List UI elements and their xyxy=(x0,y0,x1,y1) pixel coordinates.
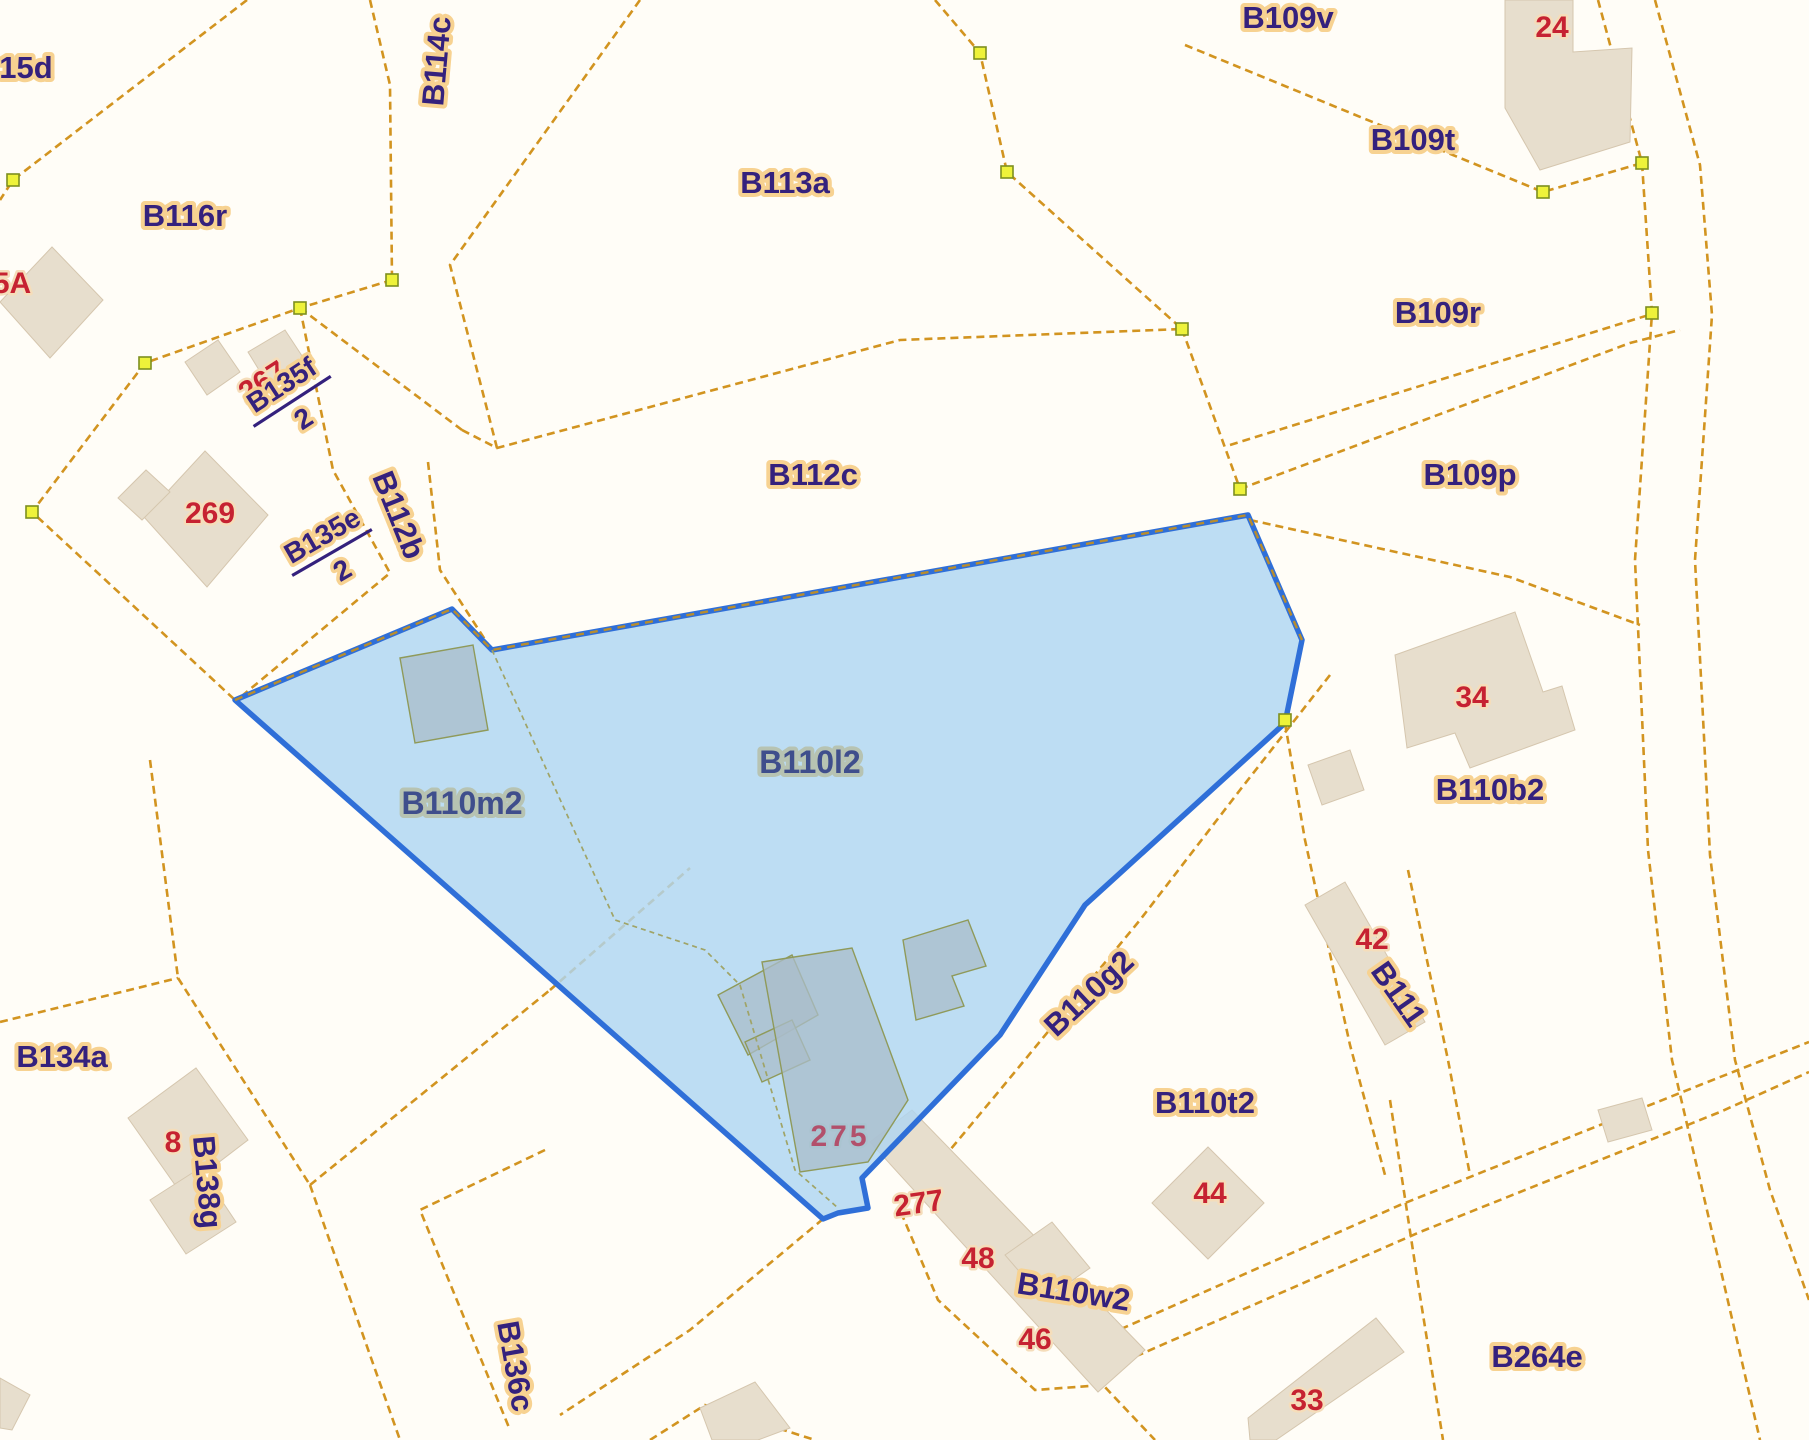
vertex-marker xyxy=(1234,483,1246,495)
parcel-B109t: B109t xyxy=(1371,122,1455,157)
vertex-marker xyxy=(1001,166,1013,178)
parcel-B134a: B134a xyxy=(16,1039,108,1074)
house-42: 42 xyxy=(1355,923,1388,956)
vertex-marker xyxy=(1279,714,1291,726)
vertex-marker xyxy=(1636,157,1648,169)
parcel-B110t2: B110t2 xyxy=(1155,1085,1255,1120)
house-33: 33 xyxy=(1290,1384,1323,1417)
building-footprint-selected xyxy=(400,645,488,743)
parcel-B264e: B264e xyxy=(1491,1339,1582,1374)
parcel-B109r: B109r xyxy=(1395,295,1481,330)
parcel-B110m2: B110m2 xyxy=(402,785,523,821)
vertex-marker xyxy=(294,302,306,314)
vertex-marker xyxy=(386,274,398,286)
parcel-B109p: B109p xyxy=(1423,457,1516,492)
vertex-marker xyxy=(7,174,19,186)
house-5A: 5A xyxy=(0,267,31,300)
house-275: 275 xyxy=(810,1120,869,1153)
vertex-marker xyxy=(26,506,38,518)
vertex-marker xyxy=(1646,307,1658,319)
house-277: 277 xyxy=(892,1184,946,1224)
parcel-B109v: B109v xyxy=(1242,0,1334,35)
cadastral-map[interactable]: 15dB116rB114cB113aB109vB109tB109rB112cB1… xyxy=(0,0,1809,1440)
vertex-marker xyxy=(139,357,151,369)
house-48: 48 xyxy=(961,1242,994,1275)
vertex-marker xyxy=(1176,323,1188,335)
parcel-B113a: B113a xyxy=(740,165,830,200)
parcel-15d: 15d xyxy=(0,50,53,85)
parcel-B110l2: B110l2 xyxy=(759,744,860,780)
vertex-marker xyxy=(1537,186,1549,198)
map-canvas[interactable]: 15dB116rB114cB113aB109vB109tB109rB112cB1… xyxy=(0,0,1809,1440)
house-269: 269 xyxy=(185,497,235,530)
house-44: 44 xyxy=(1193,1177,1227,1210)
house-8: 8 xyxy=(165,1126,182,1159)
parcel-B110b2: B110b2 xyxy=(1436,772,1545,807)
house-46: 46 xyxy=(1018,1323,1051,1356)
house-24: 24 xyxy=(1535,11,1569,44)
parcel-B112c: B112c xyxy=(768,457,858,492)
vertex-marker xyxy=(974,47,986,59)
house-34: 34 xyxy=(1455,681,1489,714)
parcel-B116r: B116r xyxy=(143,198,227,233)
